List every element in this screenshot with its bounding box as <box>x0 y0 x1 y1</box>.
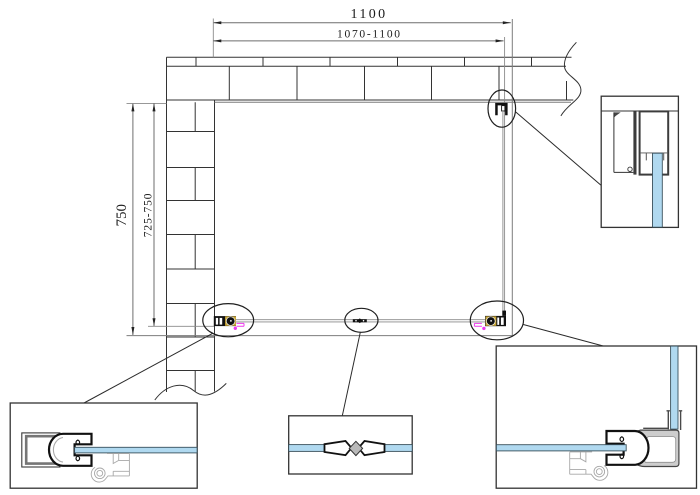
svg-text:750: 750 <box>114 204 130 227</box>
svg-text:1100: 1100 <box>350 7 387 22</box>
svg-text:1070-1100: 1070-1100 <box>337 29 402 41</box>
svg-text:725-750: 725-750 <box>142 193 154 238</box>
